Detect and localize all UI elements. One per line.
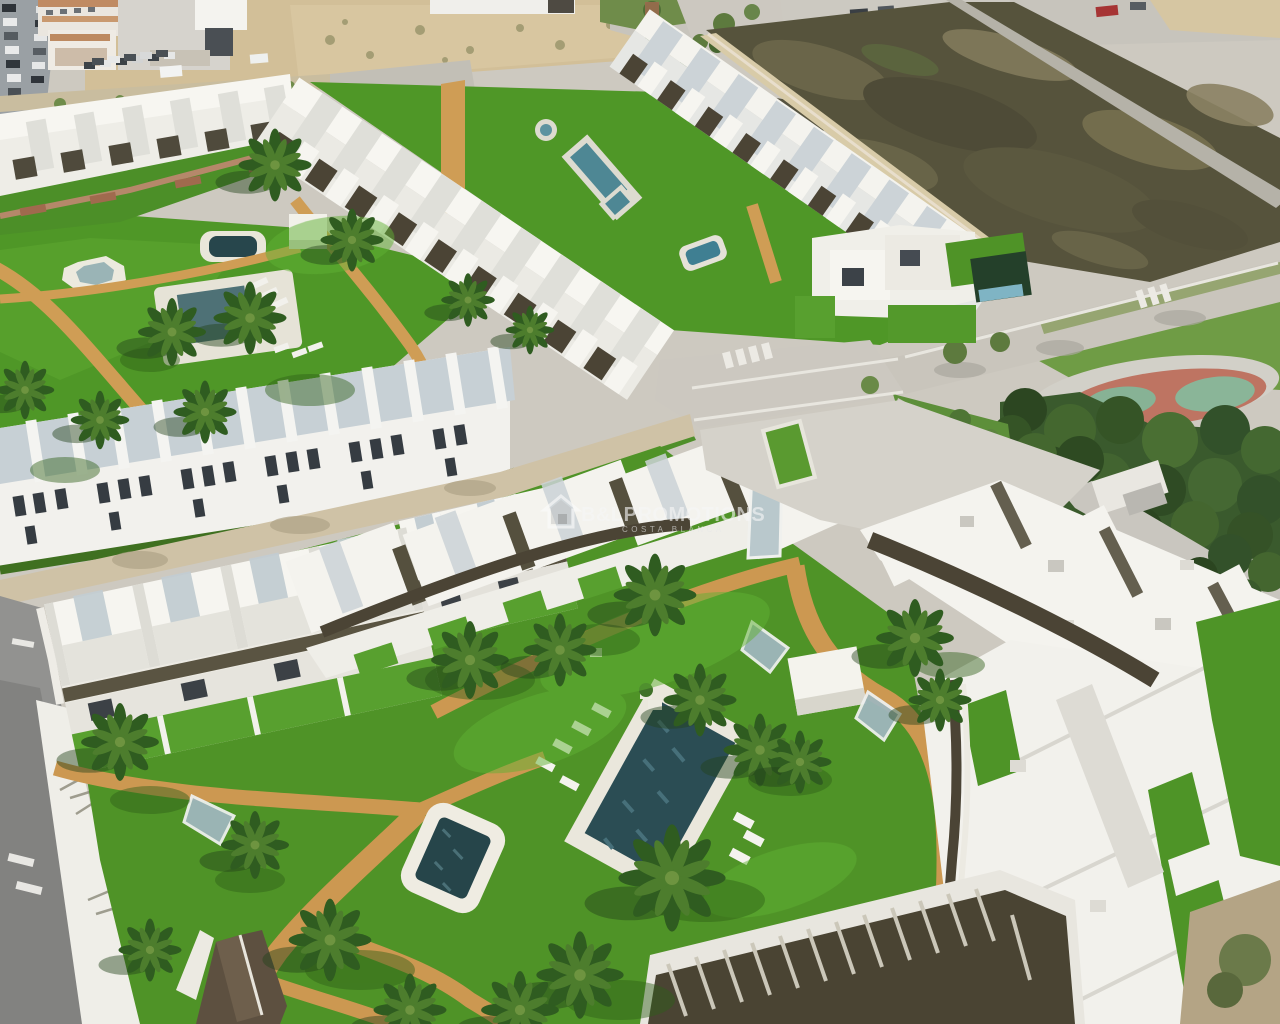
- svg-text:B&LPROMOTIONS: B&LPROMOTIONS: [581, 504, 765, 526]
- svg-text:COSTA BLANCA: COSTA BLANCA: [622, 525, 725, 534]
